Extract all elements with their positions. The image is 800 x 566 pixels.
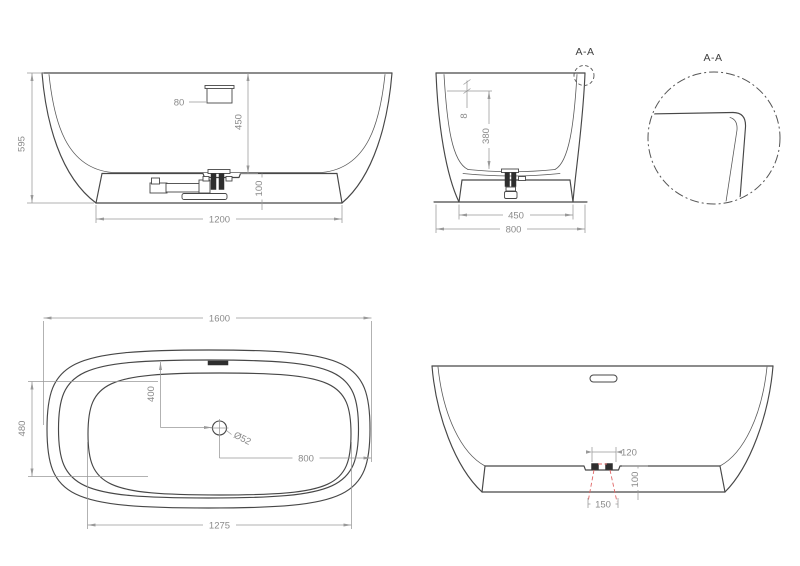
rear-elevation-dimensions: 120 100 150 <box>586 447 648 511</box>
plan-inner-rim <box>59 360 359 498</box>
rear-plinth-top <box>485 466 720 470</box>
rear-drain-recess <box>588 464 617 503</box>
dim-rim-lip: 8 <box>459 113 470 118</box>
dim-rim-to-floor: 450 <box>234 114 245 130</box>
plan-drain: Ø52 <box>211 419 253 448</box>
section-inner-right <box>555 75 577 170</box>
dim-drain-recess-width: 120 <box>621 448 637 459</box>
drawing-canvas: 595 80 450 100 1200 <box>0 0 800 566</box>
detail-rim-profile <box>648 113 746 206</box>
section-drain-tail <box>505 192 518 199</box>
dim-drain-clearance: 150 <box>595 500 611 511</box>
dim-basin-width: 480 <box>17 421 28 437</box>
drain-clip-left <box>592 464 599 470</box>
view-plan: Ø52 1600 480 400 800 1275 <box>17 313 372 532</box>
section-drain-flange <box>502 169 519 173</box>
dim-drain-to-end: 800 <box>298 454 314 465</box>
tub-right-wall <box>342 73 392 203</box>
dim-basin-length: 1275 <box>209 521 230 532</box>
view-end-section: A-A 8 380 450 800 <box>434 46 595 236</box>
clearance-line-right <box>610 470 617 502</box>
overflow-body <box>207 88 232 103</box>
plan-overflow-slot <box>208 361 228 365</box>
section-right-wall <box>573 73 585 202</box>
end-section-dimensions: 8 380 450 800 <box>436 80 585 236</box>
technical-drawing: 595 80 450 100 1200 <box>0 0 800 566</box>
dim-drain-offset: 400 <box>146 386 157 402</box>
tub-left-wall <box>42 73 96 203</box>
dim-drain-diameter: Ø52 <box>232 430 253 448</box>
rear-overflow-slot <box>590 375 617 382</box>
clearance-line-left <box>588 470 594 502</box>
section-inner-left <box>444 75 468 170</box>
detail-boundary-circle <box>648 72 780 204</box>
dim-overflow-width: 80 <box>174 98 185 109</box>
section-left-wall <box>436 73 459 202</box>
dim-plinth-width-section: 450 <box>508 211 524 222</box>
drain-flange <box>208 170 230 174</box>
plan-outer-rim <box>47 350 370 508</box>
rear-left-wall <box>432 366 482 492</box>
section-label: A-A <box>575 46 594 58</box>
section-drain <box>502 169 526 199</box>
overflow-box <box>205 86 234 104</box>
dim-overall-width: 800 <box>506 225 522 236</box>
dim-plinth-width-front: 1200 <box>209 215 230 226</box>
rear-right-wall <box>725 366 773 492</box>
detail-label: A-A <box>703 52 722 64</box>
rear-inner-left <box>438 367 485 466</box>
view-front-elevation: 595 80 450 100 1200 <box>17 73 393 226</box>
drain-core-left <box>211 174 216 190</box>
dim-interior-depth: 380 <box>481 128 492 144</box>
overflow-lid <box>205 86 234 89</box>
dim-plinth-height-rear: 100 <box>630 472 641 488</box>
dim-plinth-height-front: 100 <box>254 181 265 197</box>
view-rim-detail: A-A <box>648 52 780 205</box>
dim-overall-height: 595 <box>17 136 28 152</box>
plan-dimensions: 1600 480 400 800 1275 <box>17 313 372 532</box>
rear-inner-right <box>720 367 767 466</box>
drain-core-right <box>219 174 224 190</box>
dim-overall-length: 1600 <box>209 314 230 325</box>
view-rear-elevation: 120 100 150 <box>432 366 773 511</box>
